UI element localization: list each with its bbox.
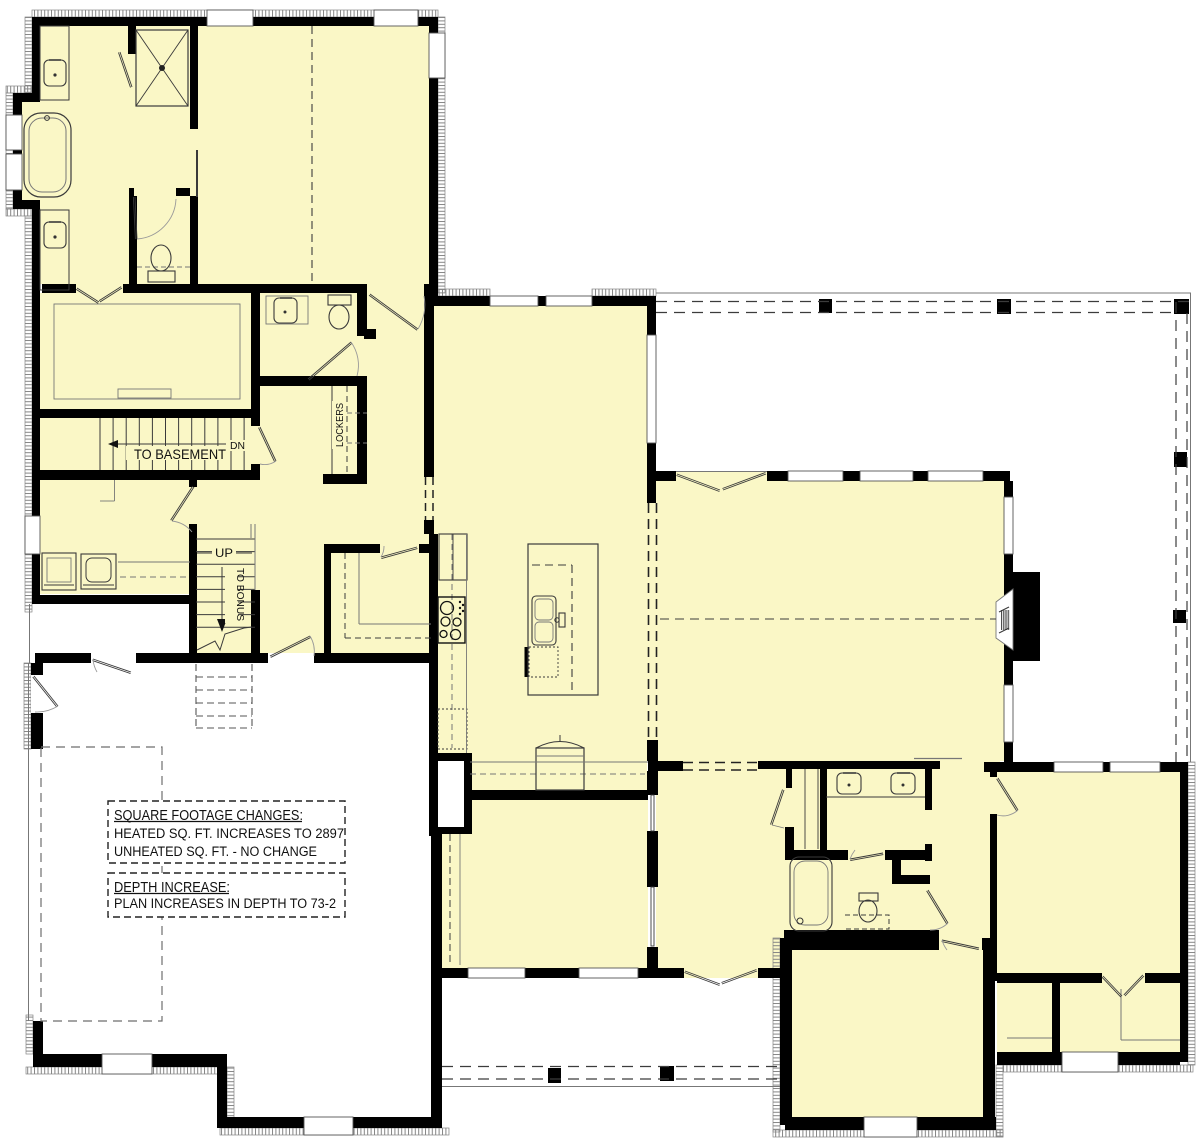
svg-text:PLAN INCREASES IN DEPTH TO 73-: PLAN INCREASES IN DEPTH TO 73-2 xyxy=(114,896,336,911)
svg-text:UP: UP xyxy=(215,548,233,560)
svg-text:TO BASEMENT: TO BASEMENT xyxy=(134,446,226,462)
svg-text:DN: DN xyxy=(230,441,245,452)
svg-text:LOCKERS: LOCKERS xyxy=(335,403,346,447)
svg-text:HEATED SQ. FT. INCREASES TO 28: HEATED SQ. FT. INCREASES TO 2897 xyxy=(114,826,344,841)
svg-text:TO BONUS: TO BONUS xyxy=(234,568,245,621)
svg-text:UNHEATED SQ. FT. - NO CHANGE: UNHEATED SQ. FT. - NO CHANGE xyxy=(114,844,317,859)
